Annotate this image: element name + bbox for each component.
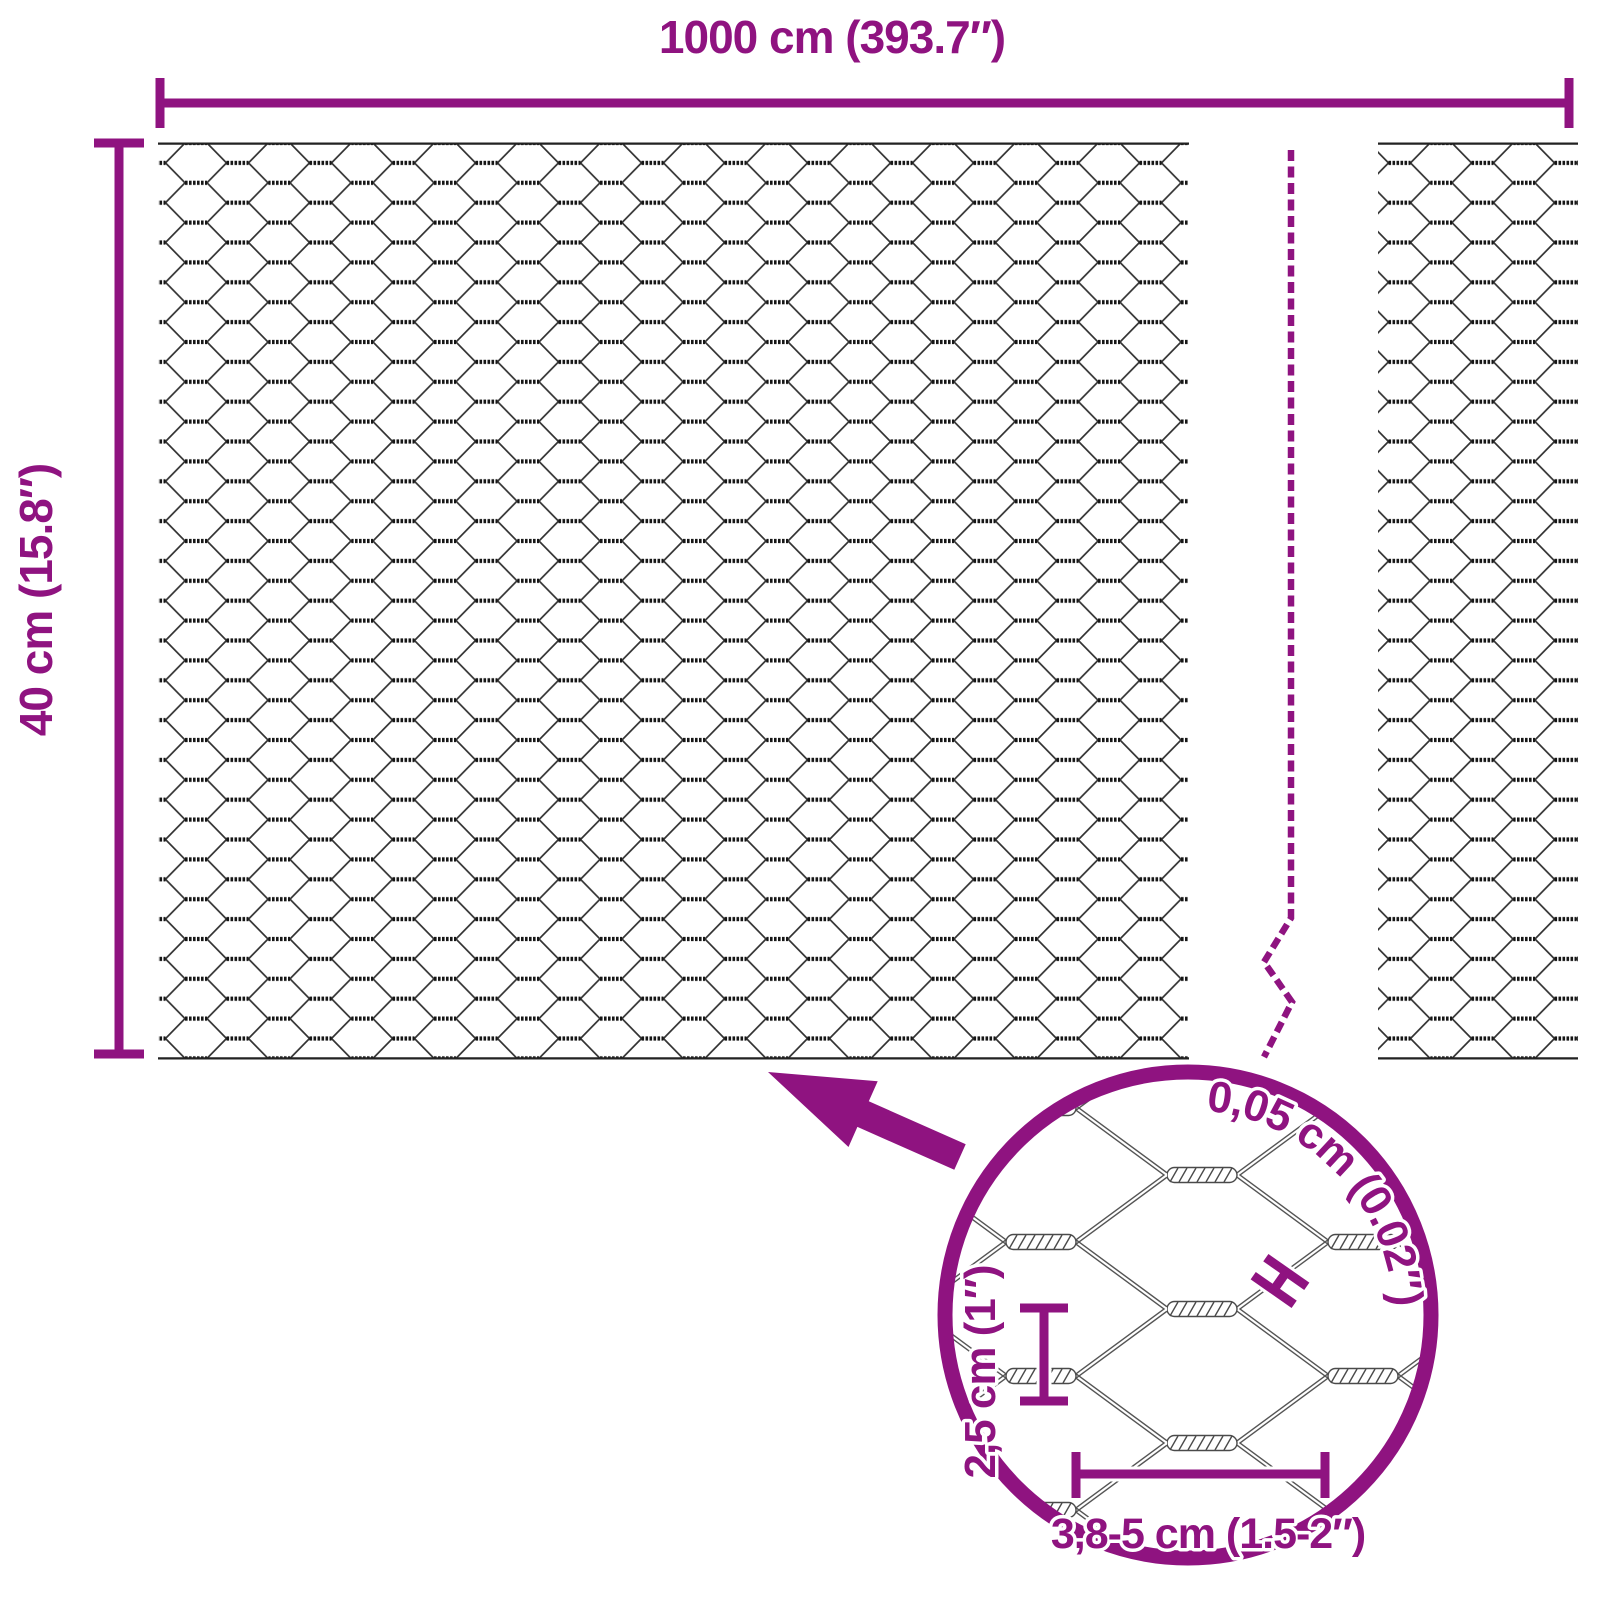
left-dimension bbox=[94, 143, 144, 1054]
top-dimension bbox=[160, 78, 1569, 128]
mesh-height-label: 2,5 cm (1″) bbox=[956, 1265, 1005, 1478]
roll-height-label: 40 cm (15.8″) bbox=[10, 464, 62, 736]
total-length-label: 1000 cm (393.7″) bbox=[659, 11, 1005, 63]
break-line bbox=[1264, 150, 1292, 1057]
product-dimension-diagram: 1000 cm (393.7″) 40 cm (15.8″) bbox=[0, 0, 1600, 1600]
mesh-panel-left bbox=[158, 143, 1189, 1059]
detail-lens: 0,05 cm (0.02″) 2,5 cm (1″) 3,8-5 cm (1.… bbox=[930, 1055, 1450, 1575]
mesh-width-label: 3,8-5 cm (1.5-2″) bbox=[1051, 1510, 1365, 1558]
mesh-panel-right bbox=[1378, 143, 1578, 1059]
zoom-arrow-icon bbox=[768, 1072, 966, 1170]
lens-mesh bbox=[930, 1055, 1450, 1575]
